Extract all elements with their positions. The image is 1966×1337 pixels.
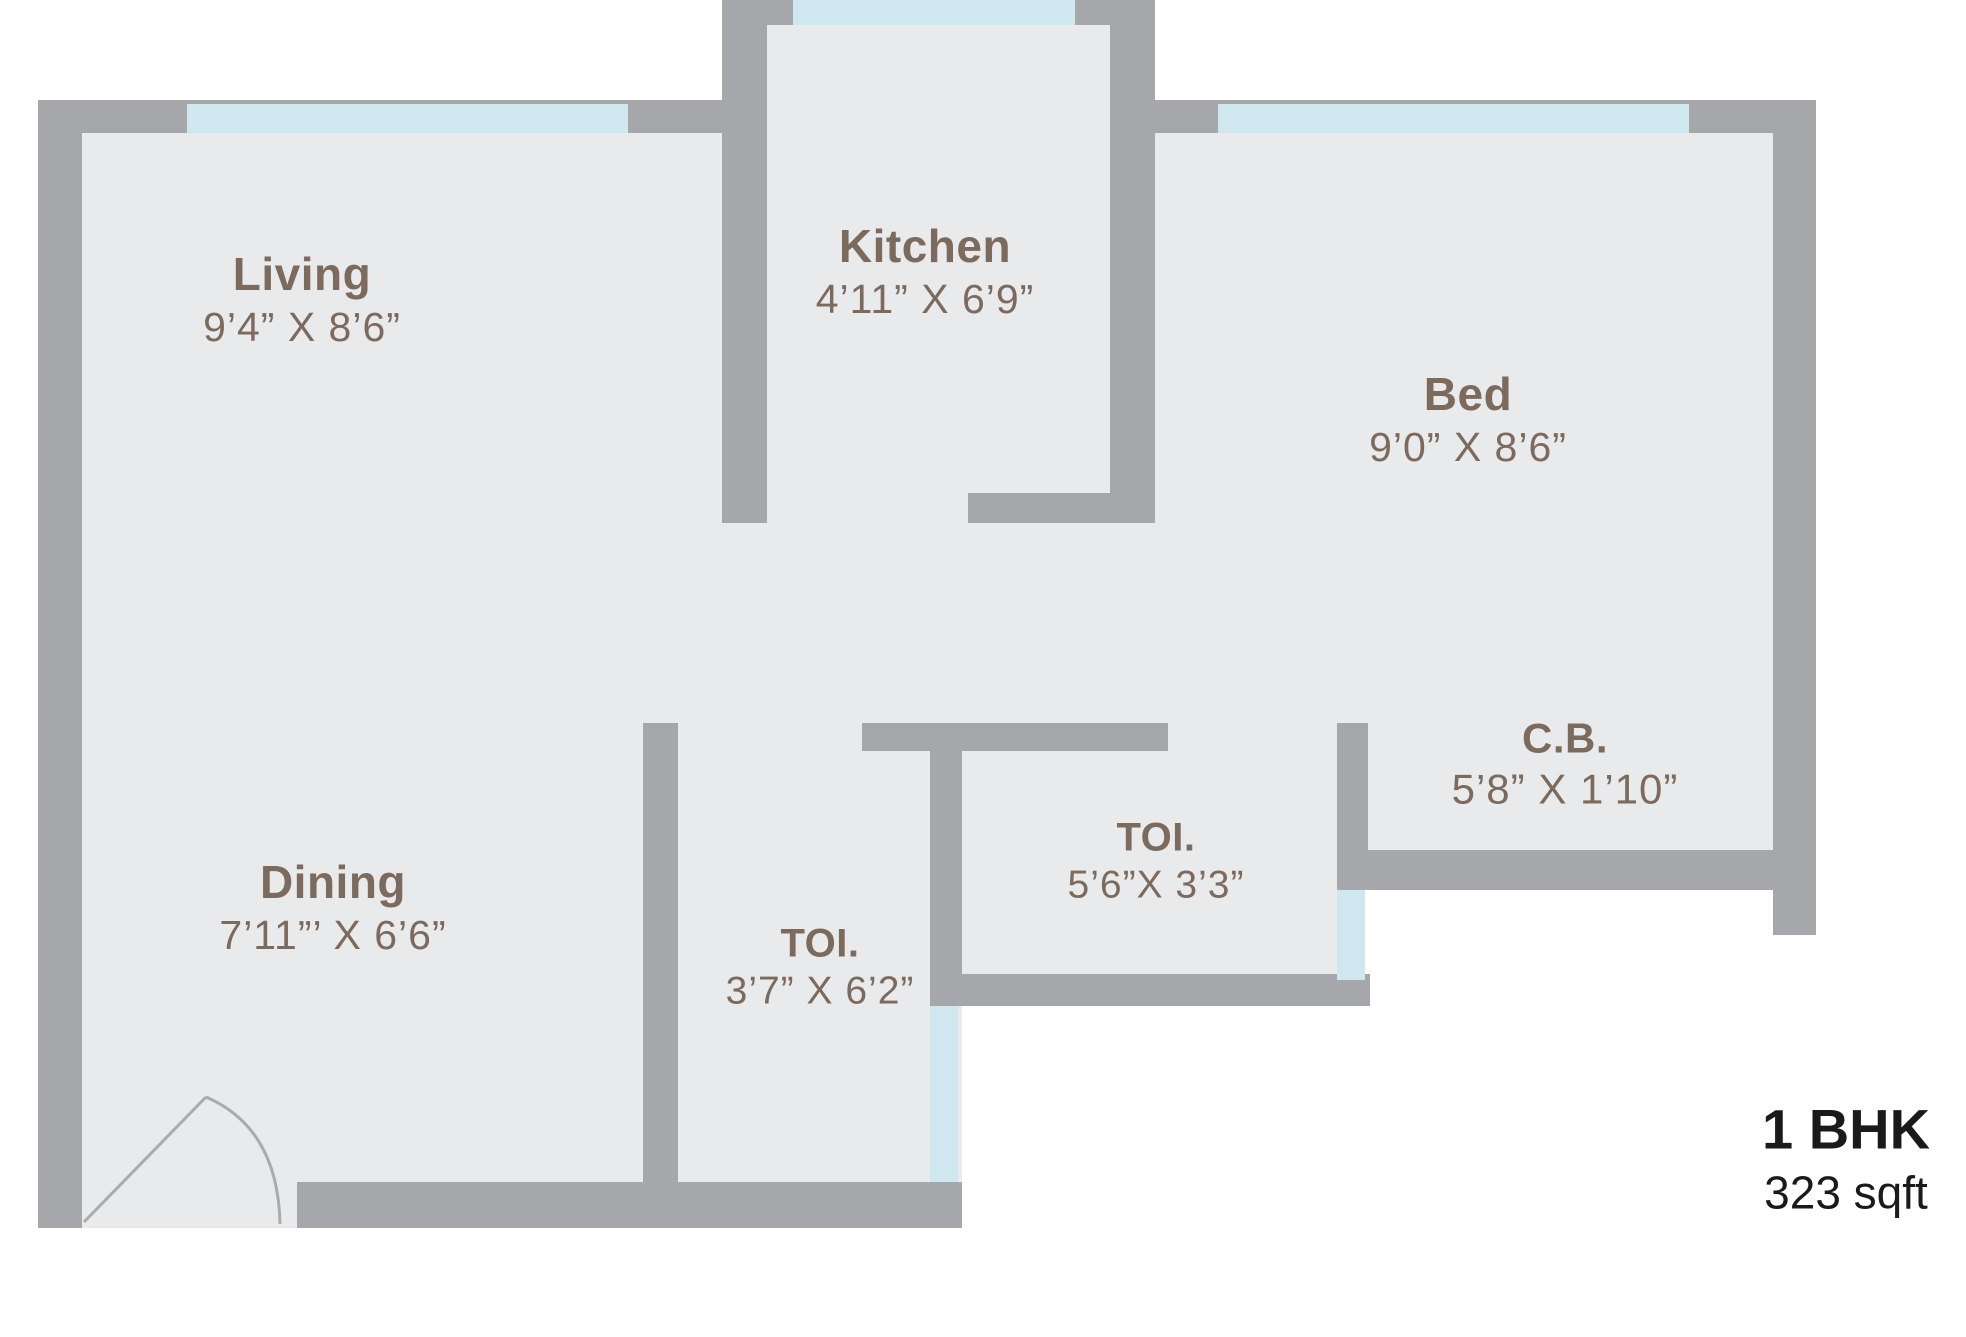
window-kitchen — [793, 0, 1075, 25]
unit-area-label: 323 sqft — [1762, 1164, 1930, 1222]
room-dimensions: 5’8” X 1’10” — [1452, 764, 1679, 817]
wall-exterior-bottom — [297, 1182, 962, 1228]
wall-exterior-right — [1773, 100, 1816, 935]
wall-kitchen-bottom-stub — [968, 493, 1155, 523]
wall-cupboard-bottom — [1337, 850, 1816, 890]
wall-exterior-left — [38, 100, 82, 1228]
room-label-toilet-2: TOI. 5’6”X 3’3” — [1068, 814, 1245, 911]
wall-kitchen-left — [722, 0, 767, 523]
window-bed — [1218, 104, 1689, 133]
room-dimensions: 9’0” X 8’6” — [1369, 422, 1567, 473]
floor-entrance-doorway — [82, 1182, 297, 1228]
room-name: C.B. — [1452, 714, 1679, 764]
wall-toilet-2-top — [862, 723, 1168, 751]
unit-type-label: 1 BHK — [1762, 1094, 1930, 1164]
wall-toilet-1-right — [930, 751, 962, 1006]
room-name: Dining — [219, 855, 446, 910]
room-dimensions: 3’7” X 6’2” — [726, 968, 915, 1017]
room-name: Kitchen — [816, 219, 1035, 274]
room-label-living: Living 9’4” X 8’6” — [203, 247, 401, 353]
room-label-toilet-1: TOI. 3’7” X 6’2” — [726, 920, 915, 1017]
wall-toilet-2-bottom — [930, 974, 1370, 1006]
room-name: Bed — [1369, 367, 1567, 422]
wall-kitchen-right — [1110, 0, 1155, 493]
room-name: TOI. — [726, 920, 915, 968]
window-toilet-2-side — [1337, 890, 1365, 980]
unit-info: 1 BHK 323 sqft — [1762, 1094, 1930, 1222]
room-name: Living — [203, 247, 401, 302]
room-label-kitchen: Kitchen 4’11” X 6’9” — [816, 219, 1035, 325]
room-dimensions: 4’11” X 6’9” — [816, 274, 1035, 325]
window-toilet-1-side — [930, 1006, 958, 1182]
room-label-cupboard: C.B. 5’8” X 1’10” — [1452, 714, 1679, 817]
floor-hall-toilet-1 — [82, 523, 962, 1182]
wall-toilet-1-left — [643, 723, 678, 1182]
window-living — [187, 104, 628, 133]
room-label-dining: Dining 7’11”’ X 6’6” — [219, 855, 446, 961]
room-dimensions: 7’11”’ X 6’6” — [219, 910, 446, 961]
room-dimensions: 5’6”X 3’3” — [1068, 862, 1245, 911]
room-label-bed: Bed 9’0” X 8’6” — [1369, 367, 1567, 473]
room-name: TOI. — [1068, 814, 1245, 862]
room-dimensions: 9’4” X 8’6” — [203, 302, 401, 353]
floor-plan: Living 9’4” X 8’6” Kitchen 4’11” X 6’9” … — [0, 0, 1966, 1337]
